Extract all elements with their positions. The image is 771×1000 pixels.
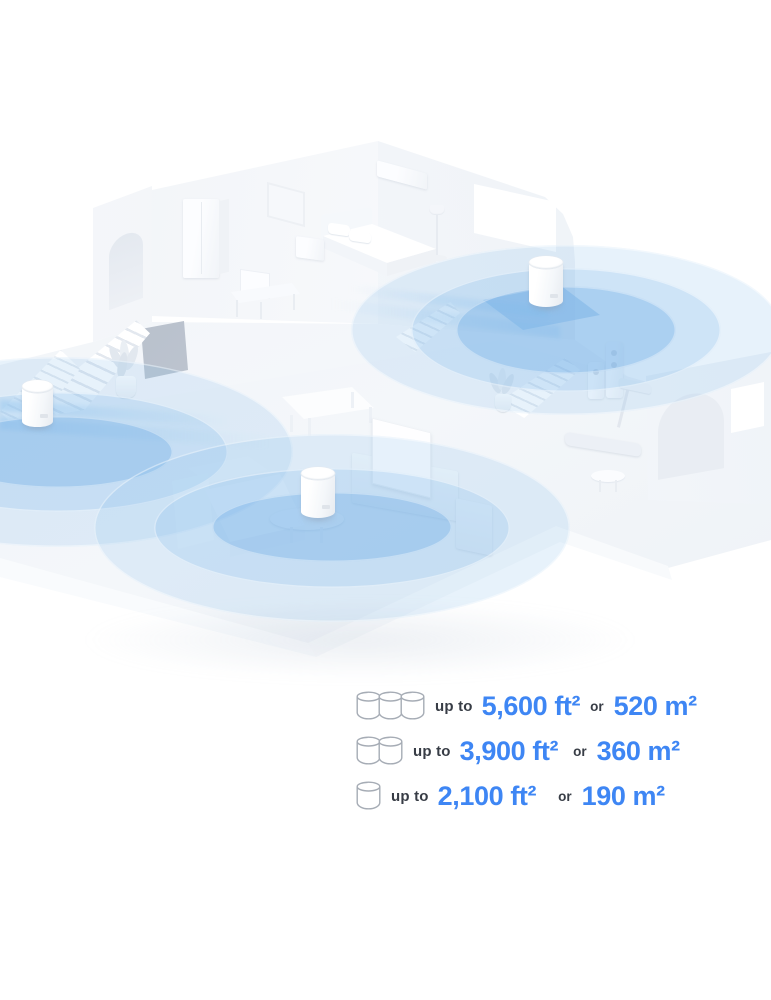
- deco-cylinder-icon: [400, 691, 425, 722]
- coverage-row-1pack: up to 2,100 ft² or 190 m²: [356, 774, 707, 819]
- desk-leg: [236, 300, 238, 317]
- coverage-conjunction: or: [590, 699, 604, 714]
- coverage-metric: 520 m²: [614, 691, 697, 722]
- coverage-prefix: up to: [435, 698, 473, 715]
- coverage-imperial: 3,900 ft²: [460, 736, 558, 767]
- deco-unit-center: [301, 473, 335, 518]
- deco-3pack-icon: [356, 691, 422, 722]
- deco-unit-cap: [22, 380, 53, 393]
- coverage-metric: 190 m²: [582, 781, 665, 812]
- table-leg: [615, 480, 617, 492]
- lamp-shade: [429, 205, 445, 215]
- deco-2pack-icon: [356, 736, 400, 767]
- page: up to 5,600 ft² or 520 m² up to 3,900 ft…: [0, 0, 771, 1000]
- coverage-specs: up to 5,600 ft² or 520 m² up to 3,900 ft…: [356, 684, 707, 819]
- table-leg: [599, 480, 601, 492]
- table-leg: [308, 418, 311, 436]
- house-illustration: [0, 0, 771, 1000]
- deco-cylinder-icon: [378, 736, 403, 767]
- nightstand: [296, 236, 324, 261]
- lamp-pole: [436, 214, 438, 257]
- coverage-imperial: 5,600 ft²: [482, 691, 580, 722]
- desk-leg: [293, 294, 295, 310]
- table-leg: [351, 392, 354, 408]
- deco-unit-cap: [529, 256, 563, 269]
- coverage-conjunction: or: [573, 744, 587, 759]
- deco-1pack-icon: [356, 781, 378, 812]
- coverage-conjunction: or: [558, 789, 572, 804]
- table-leg: [290, 415, 293, 432]
- coverage-prefix: up to: [413, 743, 451, 760]
- coverage-metric: 360 m²: [597, 736, 680, 767]
- table-top: [591, 470, 625, 482]
- desk-leg: [260, 302, 262, 319]
- coverage-prefix: up to: [391, 788, 429, 805]
- deco-unit-top: [529, 262, 563, 307]
- deco-unit-left: [22, 386, 53, 427]
- wifi-ripple-inner: [456, 286, 676, 374]
- deco-logo: [550, 294, 558, 298]
- deco-cylinder-icon: [356, 781, 381, 812]
- coverage-row-2pack: up to 3,900 ft² or 360 m²: [356, 729, 707, 774]
- deco-logo: [40, 414, 48, 418]
- coverage-row-3pack: up to 5,600 ft² or 520 m²: [356, 684, 707, 729]
- deco-logo: [322, 505, 330, 509]
- coverage-imperial: 2,100 ft²: [438, 781, 536, 812]
- deco-unit-cap: [301, 467, 335, 480]
